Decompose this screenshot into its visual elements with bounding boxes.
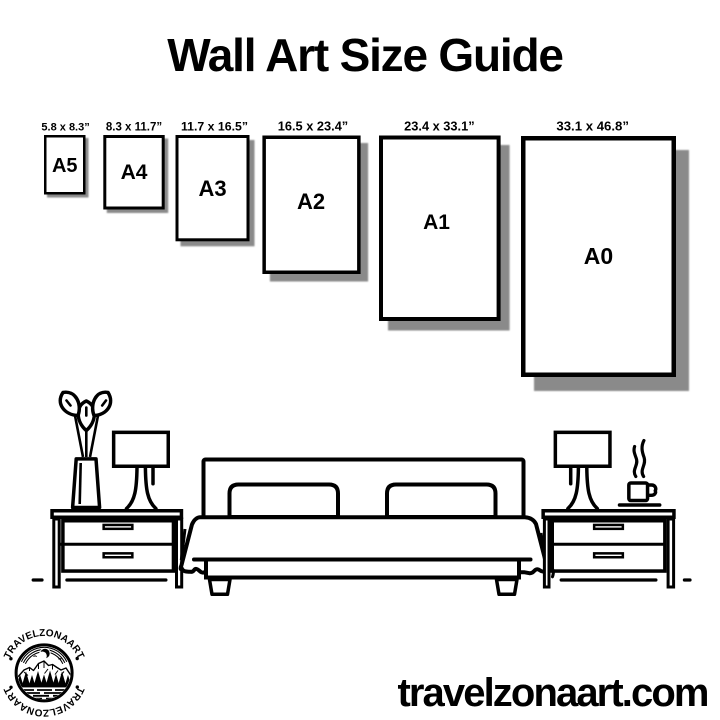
svg-text:16.5 x 23.4”: 16.5 x 23.4” (278, 119, 348, 134)
svg-text:A4: A4 (121, 161, 148, 184)
svg-text:A1: A1 (423, 211, 450, 234)
svg-text:Wall Art Size Guide: Wall Art Size Guide (167, 29, 563, 81)
svg-text:A5: A5 (52, 155, 78, 177)
svg-text:23.4 x 33.1”: 23.4 x 33.1” (404, 119, 474, 134)
svg-text:A0: A0 (584, 243, 613, 269)
svg-text:8.3 x 11.7”: 8.3 x 11.7” (106, 122, 162, 134)
svg-text:A2: A2 (297, 189, 325, 214)
svg-text:33.1 x 46.8”: 33.1 x 46.8” (556, 119, 629, 134)
svg-text:11.7 x 16.5”: 11.7 x 16.5” (181, 120, 248, 134)
svg-text:5.8 x 8.3”: 5.8 x 8.3” (41, 122, 89, 134)
svg-text:A3: A3 (198, 176, 226, 201)
svg-text:travelzonaart.com: travelzonaart.com (397, 671, 707, 715)
